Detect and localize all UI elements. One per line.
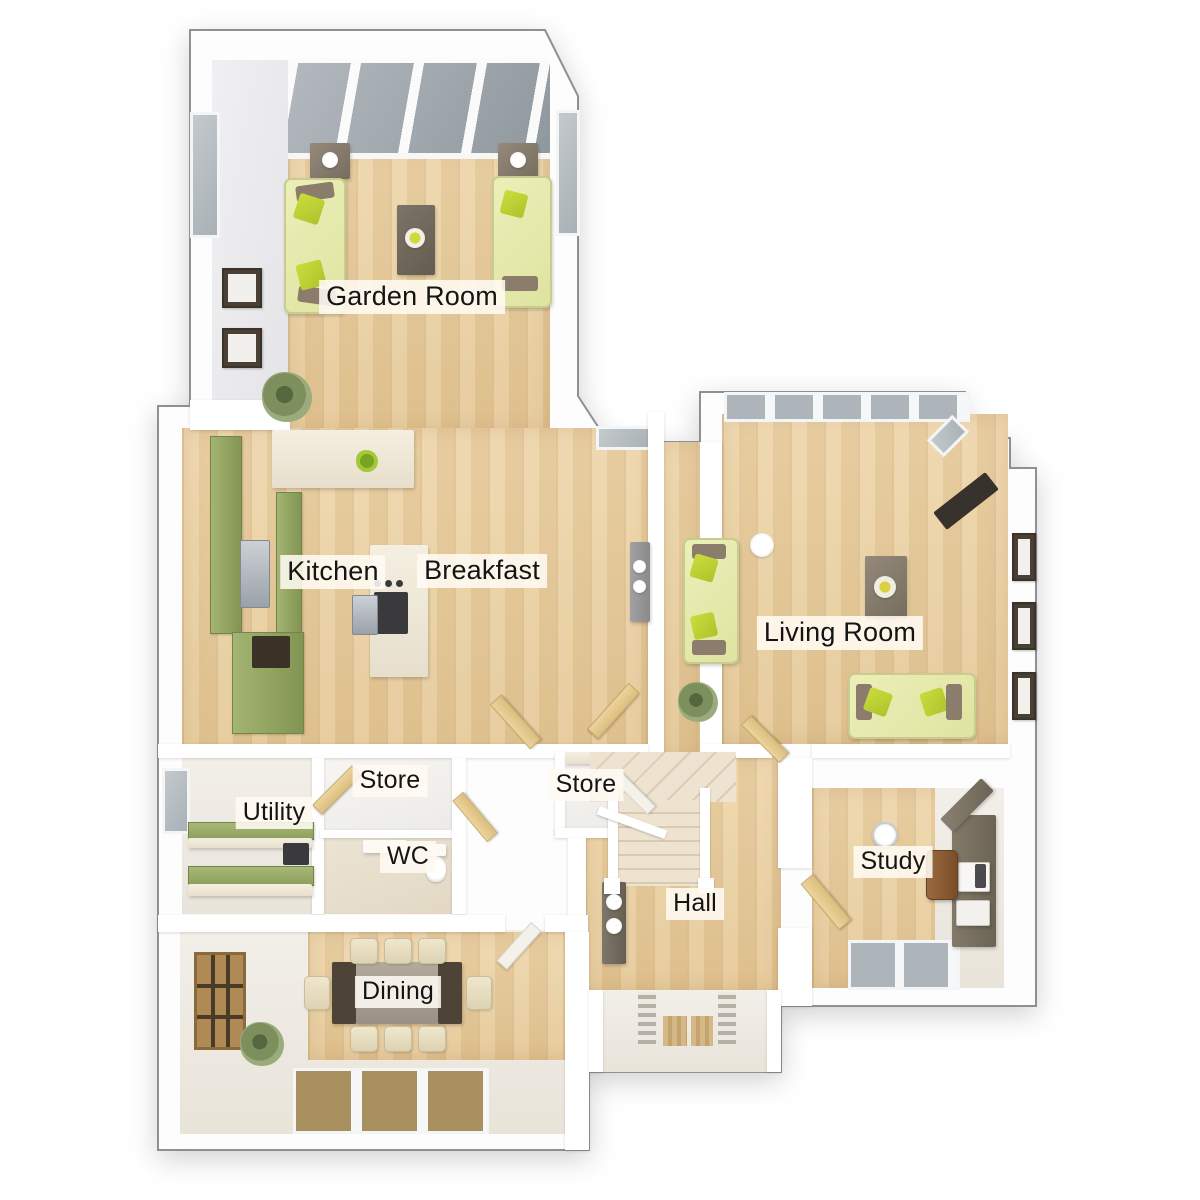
wall-breakfast-passage <box>648 412 664 758</box>
kitchen-wine-rack <box>252 636 290 668</box>
living-coffee-table-tray <box>874 576 896 598</box>
garden-lamp-right <box>510 152 526 168</box>
room-label-breakfast: Breakfast <box>417 554 547 588</box>
living-bay-window <box>724 392 970 422</box>
utility-window <box>162 768 190 834</box>
room-label-store-1: Store <box>353 765 428 797</box>
wall-dining-top-b <box>545 915 588 932</box>
dining-bay-window <box>293 1068 489 1134</box>
living-picture-3 <box>1012 672 1036 720</box>
kitchen-tall-cabinet <box>210 436 242 634</box>
kitchen-hob-knob-3 <box>396 580 403 587</box>
kitchen-fruit-bowl <box>356 450 378 472</box>
room-label-garden-room: Garden Room <box>319 280 505 314</box>
study-laptop-screen <box>975 864 986 888</box>
stairs-rail-left <box>608 788 618 886</box>
stairs-rail-right <box>700 788 710 886</box>
dining-chair-bottom-1 <box>350 1026 378 1052</box>
garden-coffee-table-plate <box>405 228 425 248</box>
hall-console-bowl-1 <box>606 894 622 910</box>
dining-table-end-left <box>332 962 356 1024</box>
stairs-newel-left <box>604 878 620 894</box>
dining-plant <box>240 1022 284 1066</box>
study-printer <box>956 900 990 926</box>
porch-mat-center-2 <box>691 1016 713 1046</box>
wall-dining-top-a <box>158 915 505 932</box>
living-picture-2 <box>1012 602 1036 650</box>
breakfast-top-window <box>596 426 654 450</box>
kitchen-hob-knob-2 <box>385 580 392 587</box>
wall-porch-left <box>589 990 603 1072</box>
porch-mat-left <box>638 992 656 1044</box>
garden-plant <box>262 372 312 422</box>
wall-porch-right <box>767 990 781 1072</box>
wall-store-wc <box>320 830 452 838</box>
garden-picture-2 <box>222 328 262 368</box>
room-label-store-2: Store <box>549 769 624 801</box>
dining-chair-top-2 <box>384 938 412 964</box>
wall-hall-study-b <box>778 928 812 1006</box>
garden-picture-1 <box>222 268 262 308</box>
garden-right-window <box>556 110 580 236</box>
utility-counter-lower <box>188 866 314 886</box>
hall-console-bowl-2 <box>606 918 622 934</box>
kitchen-oven <box>240 540 270 608</box>
dining-chair-right <box>466 976 492 1010</box>
living-picture-1 <box>1012 533 1036 581</box>
garden-left-window <box>190 112 220 238</box>
living-sofa-bottom-cushion-2 <box>946 684 962 720</box>
dining-lattice-window <box>194 952 246 1050</box>
kitchen-counter <box>272 430 414 488</box>
room-label-study: Study <box>854 846 933 878</box>
wall-hall-study-a <box>778 758 812 868</box>
room-label-dining: Dining <box>355 976 441 1008</box>
breakfast-sideboard-bowl-2 <box>633 580 646 593</box>
dining-chair-left <box>304 976 330 1010</box>
room-label-living-room: Living Room <box>757 616 923 650</box>
room-label-wc: WC <box>380 841 436 873</box>
kitchen-cooker <box>374 592 408 634</box>
living-floor-lamp <box>750 533 774 557</box>
wall-wc-right <box>452 758 466 914</box>
room-label-hall: Hall <box>666 888 724 920</box>
breakfast-sideboard-bowl-1 <box>633 560 646 573</box>
study-window <box>848 940 960 990</box>
porch-mat-center-1 <box>663 1016 687 1046</box>
study-ceiling-light <box>872 822 898 848</box>
stairs-flight <box>618 800 702 886</box>
dining-chair-top-3 <box>418 938 446 964</box>
dining-table-end-right <box>438 962 462 1024</box>
porch-mat-right <box>718 992 736 1044</box>
utility-counter-lower-body <box>188 884 312 896</box>
room-label-utility: Utility <box>236 797 313 829</box>
living-sofa-left-pillow-2 <box>690 612 718 640</box>
garden-lamp-left <box>322 152 338 168</box>
dining-chair-bottom-2 <box>384 1026 412 1052</box>
living-sofa-left-cushion-2 <box>692 640 726 655</box>
passage-plant <box>678 682 718 722</box>
kitchen-cooker-front <box>352 595 378 635</box>
wall-living-bottom-b <box>812 744 1010 758</box>
dining-chair-bottom-3 <box>418 1026 446 1052</box>
garden-sofa-right-cushion <box>502 276 538 291</box>
utility-washer <box>283 843 309 865</box>
wall-dining-right <box>565 932 589 1150</box>
floor-plan: Garden Room Kitchen Breakfast Living Roo… <box>0 0 1200 1200</box>
dining-chair-top-1 <box>350 938 378 964</box>
room-label-kitchen: Kitchen <box>280 555 385 589</box>
